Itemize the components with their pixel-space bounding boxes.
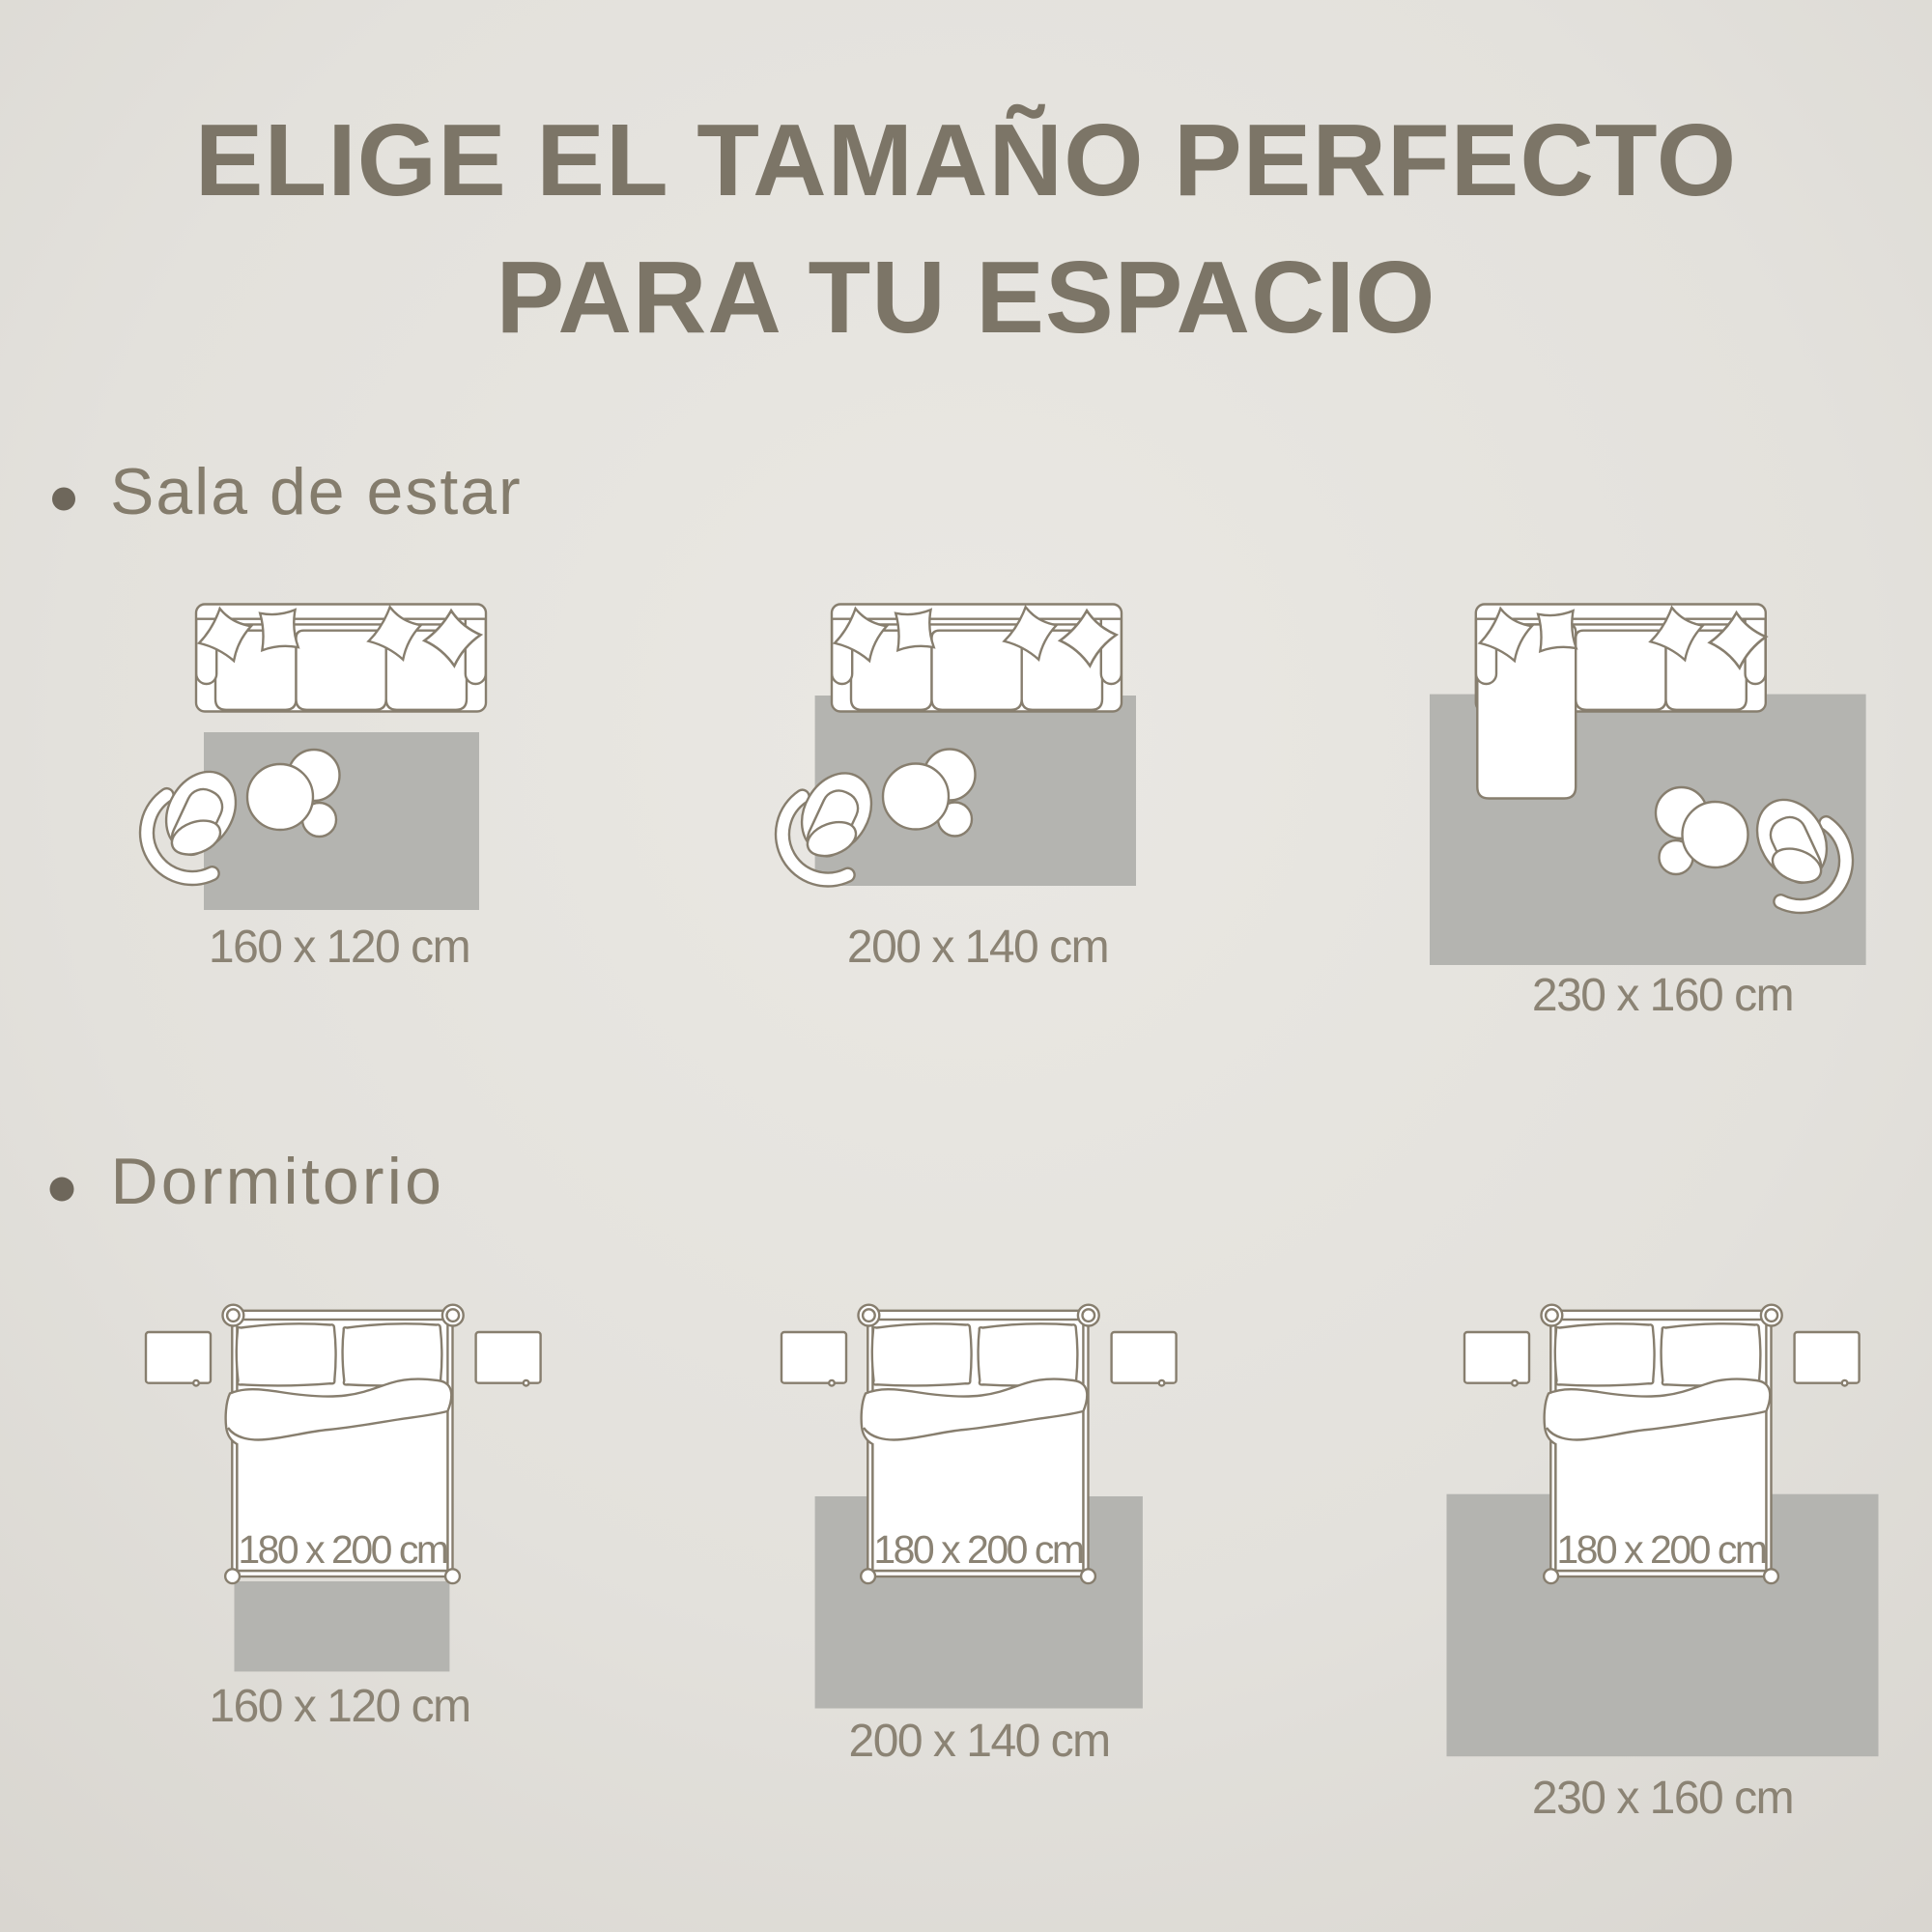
svg-text:Dormitorio: Dormitorio xyxy=(111,1145,445,1218)
svg-text:230 x 160 cm: 230 x 160 cm xyxy=(1532,970,1793,1021)
svg-text:Sala de estar: Sala de estar xyxy=(110,455,523,528)
svg-text:160 x 120 cm: 160 x 120 cm xyxy=(209,1681,469,1732)
svg-text:PARA TU ESPACIO: PARA TU ESPACIO xyxy=(497,241,1436,355)
svg-text:160 x 120 cm: 160 x 120 cm xyxy=(209,922,469,973)
svg-text:ELIGE EL TAMAÑO PERFECTO: ELIGE EL TAMAÑO PERFECTO xyxy=(195,103,1737,217)
svg-text:200 x 140 cm: 200 x 140 cm xyxy=(849,1716,1110,1767)
svg-text:230 x 160 cm: 230 x 160 cm xyxy=(1532,1773,1793,1824)
svg-text:200 x 140 cm: 200 x 140 cm xyxy=(847,922,1108,973)
